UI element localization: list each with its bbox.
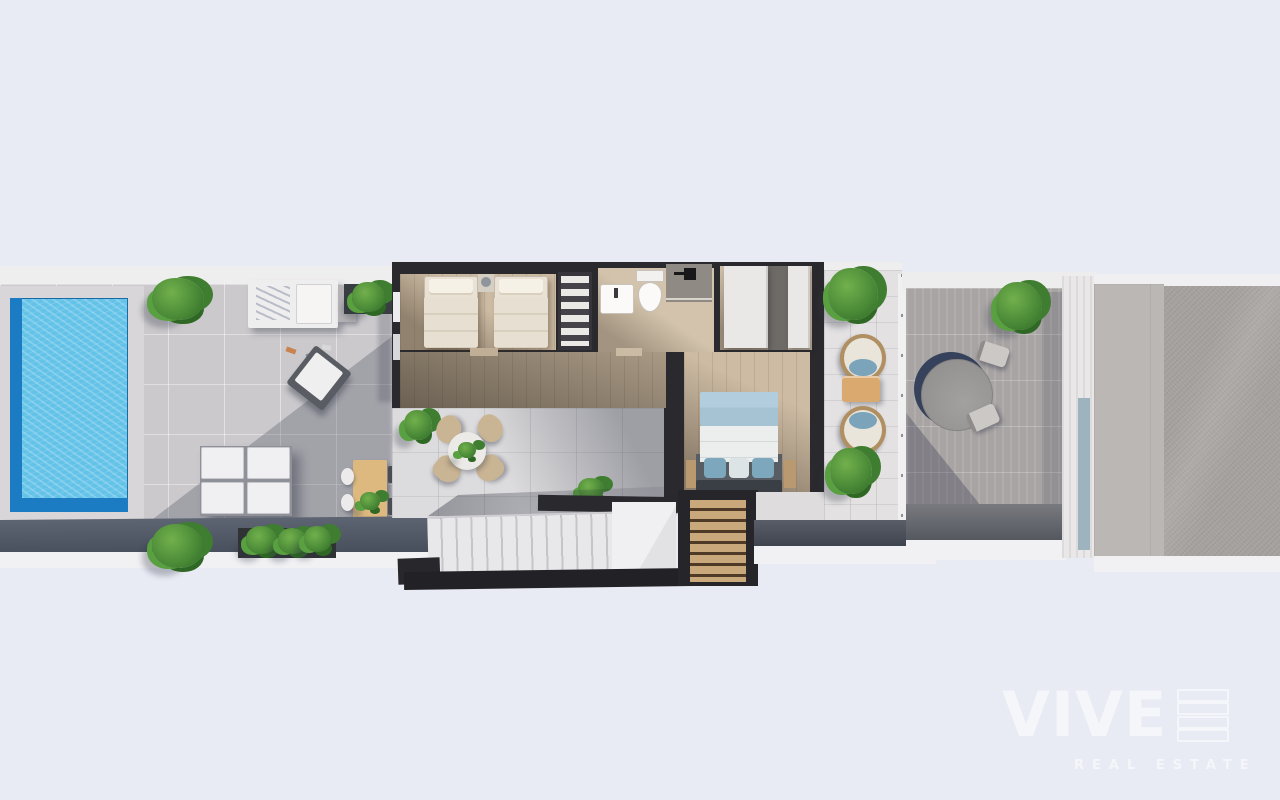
balcony-top-edge [824, 262, 902, 270]
balcony-railing [898, 274, 906, 556]
vive-logo: VIVE REAL ESTATE [1002, 686, 1257, 773]
railing-posts [901, 274, 903, 556]
sofa-cushion [201, 482, 244, 514]
faucet [614, 288, 618, 298]
daybed-towel [256, 286, 290, 320]
bed-duvet [700, 426, 778, 462]
door-gap [470, 348, 498, 356]
sofa-cushion [247, 447, 290, 479]
wardrobe [558, 272, 592, 350]
bed-pillow [499, 279, 543, 295]
swimming-pool [10, 298, 128, 512]
dining-table-plant [360, 492, 380, 510]
lounge-set-plant [458, 442, 476, 458]
nightstand [784, 460, 796, 488]
decor-plate [481, 277, 491, 287]
terrace-bottom-wall [0, 516, 460, 556]
logo-bar [1177, 729, 1229, 742]
concrete-pad-dark [1164, 286, 1280, 558]
shower-glass [666, 298, 712, 300]
sofa-cushion [247, 482, 290, 514]
dining-chair [341, 468, 354, 485]
stair-bottom-wall [404, 568, 692, 590]
single-bed [494, 276, 548, 348]
dressing-gap [768, 266, 788, 350]
vive-logo-tagline: REAL ESTATE [1074, 758, 1257, 773]
concrete-bottom-edge [1094, 556, 1280, 572]
bed-pillow [752, 458, 774, 478]
daybed [248, 280, 338, 328]
wardrobe-shelves [561, 276, 589, 346]
outdoor-sofa [200, 446, 292, 516]
right-terrace-bottom-wall [906, 504, 1066, 540]
wood-steps-frame [678, 490, 758, 586]
plant [830, 448, 872, 494]
bed-blanket [700, 392, 778, 426]
vive-logo-row: VIVE [1002, 686, 1257, 745]
window-mark [393, 334, 400, 360]
dining-chair [341, 494, 354, 511]
plant [246, 526, 278, 554]
logo-bar [1177, 689, 1229, 702]
vive-logo-bars-icon [1177, 686, 1229, 745]
daybed-cushion [296, 284, 332, 324]
bed-pillow [704, 458, 726, 478]
logo-bar [1177, 702, 1229, 715]
window-mark [393, 292, 400, 322]
washbasin [600, 284, 634, 314]
plant [152, 524, 204, 568]
nightstand [686, 460, 696, 488]
bed-blanket [494, 298, 548, 348]
bed-pillow [429, 279, 473, 295]
shower [666, 264, 712, 302]
vive-logo-text: VIVE [1002, 686, 1167, 745]
logo-bar [1177, 716, 1229, 729]
plant [828, 268, 878, 320]
terrace-bottom-edge [0, 552, 460, 568]
wardrobe-panel [788, 266, 810, 348]
hanging-chair [840, 406, 886, 454]
pool-edge-bottom [10, 498, 128, 512]
double-bed [696, 388, 782, 496]
balcony-table [842, 376, 880, 402]
hanging-chair [840, 334, 886, 382]
pool-edge-left [10, 298, 22, 512]
wardrobe-panel [724, 266, 768, 348]
plant [304, 526, 332, 552]
concrete-pad-light [1094, 284, 1164, 560]
plant [996, 282, 1042, 330]
plant [152, 278, 204, 320]
shower-arm [674, 272, 684, 275]
glass-strip [1078, 398, 1090, 550]
toilet-tank [636, 270, 664, 282]
wall-shadow-strip [1042, 292, 1064, 528]
bed-pillow [729, 458, 749, 478]
shower-head-icon [684, 268, 696, 280]
plant [352, 282, 386, 312]
potted-plant [404, 410, 432, 440]
floorplan-render: VIVE REAL ESTATE [0, 0, 1280, 800]
sofa-cushion [201, 447, 244, 479]
wood-steps [690, 500, 746, 582]
bed-blanket [424, 298, 478, 348]
single-bed [424, 276, 478, 348]
door-gap [616, 348, 642, 356]
hallway-floor [400, 352, 666, 408]
right-terrace-bottom-edge [906, 540, 1066, 560]
